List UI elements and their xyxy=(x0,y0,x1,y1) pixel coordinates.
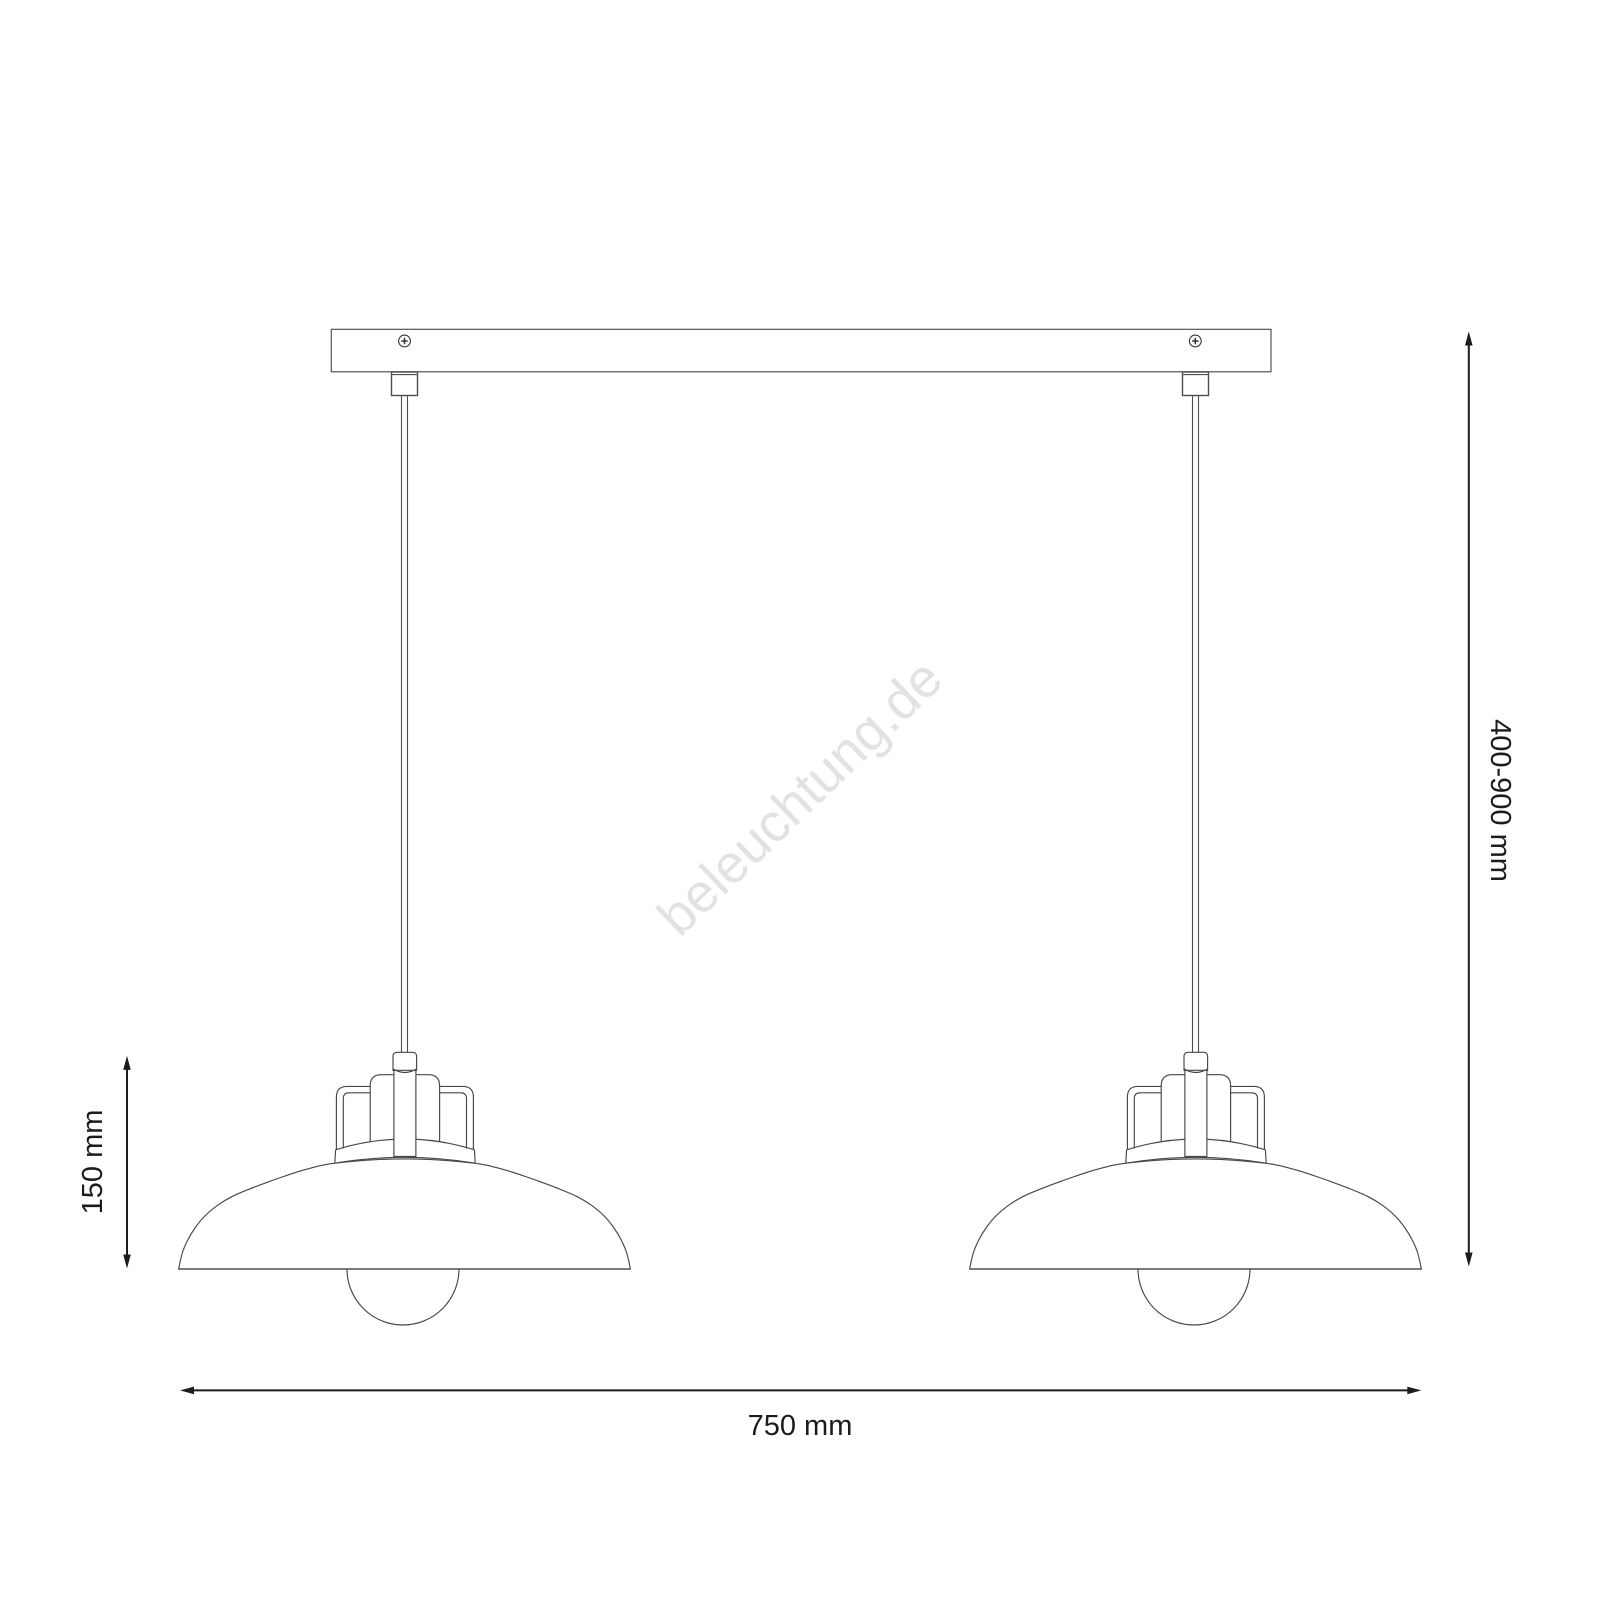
svg-text:400-900 mm: 400-900 mm xyxy=(1484,719,1516,882)
svg-text:150 mm: 150 mm xyxy=(77,1110,109,1215)
svg-text:750 mm: 750 mm xyxy=(748,1410,853,1442)
